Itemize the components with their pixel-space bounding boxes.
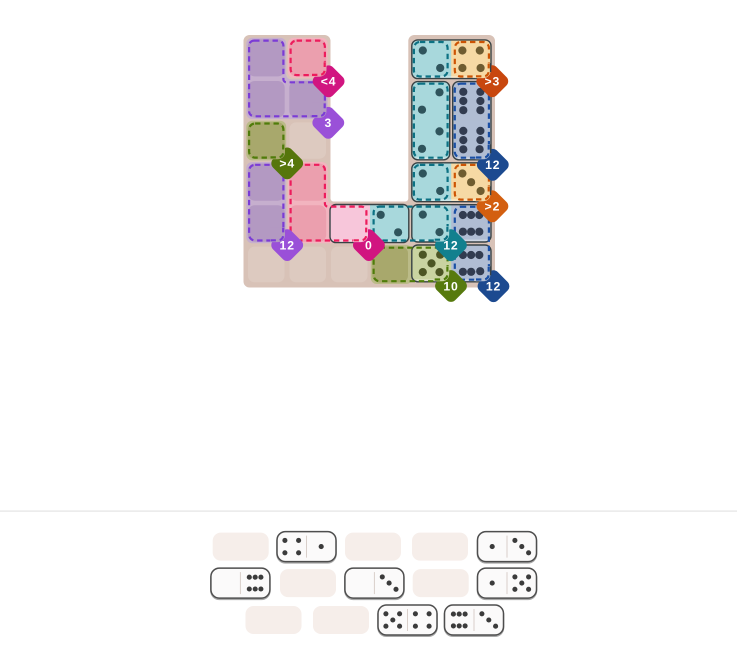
svg-text:12: 12 <box>485 158 500 172</box>
svg-text:<4: <4 <box>321 75 337 89</box>
svg-text:12: 12 <box>443 239 458 253</box>
svg-text:>2: >2 <box>485 200 501 214</box>
svg-text:3: 3 <box>324 116 332 130</box>
svg-text:12: 12 <box>486 280 501 294</box>
svg-text:>3: >3 <box>484 75 500 89</box>
svg-text:12: 12 <box>280 238 295 252</box>
svg-text:0: 0 <box>365 238 373 252</box>
svg-text:>4: >4 <box>279 157 295 171</box>
svg-text:10: 10 <box>443 279 458 293</box>
